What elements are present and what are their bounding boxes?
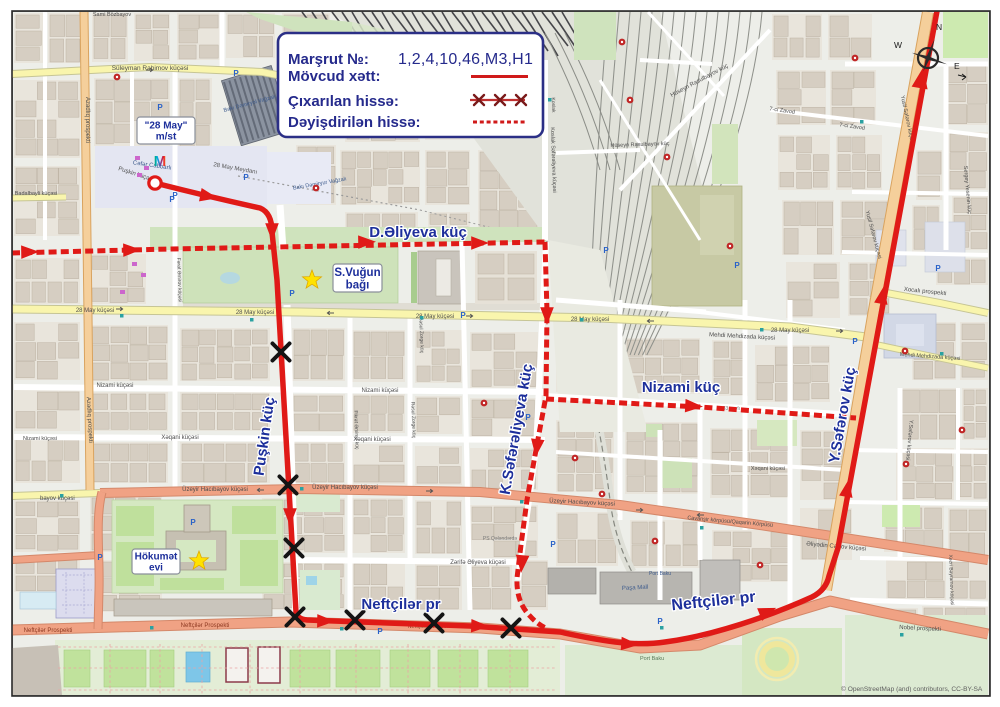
- svg-text:Üzeyir Hacıbayov küçəsi: Üzeyir Hacıbayov küçəsi: [312, 484, 378, 491]
- svg-text:Port Baku: Port Baku: [640, 656, 664, 662]
- svg-text:Xəqani küçəsi: Xəqani küçəsi: [161, 435, 198, 441]
- svg-text:P: P: [169, 195, 175, 204]
- svg-text:Port Baku: Port Baku: [649, 571, 671, 577]
- svg-text:Nizami küç: Nizami küç: [642, 379, 720, 396]
- svg-text:Badalbayli küçəsi: Badalbayli küçəsi: [15, 191, 58, 197]
- svg-text:PS Qələndərdə: PS Qələndərdə: [483, 536, 517, 542]
- svg-text:P: P: [734, 261, 740, 270]
- svg-text:Marşrut №:: Marşrut №:: [288, 51, 369, 68]
- svg-text:28 May küçəsi: 28 May küçəsi: [771, 328, 809, 334]
- svg-text:P: P: [97, 553, 103, 562]
- svg-text:P: P: [243, 173, 249, 182]
- svg-text:1,2,4,10,46,M3,H1: 1,2,4,10,46,M3,H1: [398, 51, 533, 68]
- svg-text:Dəyişdirilən hissə:: Dəyişdirilən hissə:: [288, 114, 421, 131]
- svg-text:© OpenStreetMap (and) contribu: © OpenStreetMap (and) contributors, CC-B…: [841, 685, 983, 693]
- svg-text:"28 May": "28 May": [145, 121, 188, 132]
- svg-text:P: P: [935, 264, 941, 273]
- svg-text:M: M: [154, 153, 167, 170]
- svg-text:m/st: m/st: [156, 132, 177, 143]
- svg-text:P: P: [657, 617, 663, 626]
- svg-text:28 May küçəsi: 28 May küçəsi: [236, 310, 274, 316]
- svg-text:28 May küçəsi: 28 May küçəsi: [571, 317, 609, 323]
- svg-text:P: P: [460, 311, 466, 320]
- svg-text:Hökumət: Hökumət: [135, 552, 178, 563]
- svg-text:Üzeyir Hacıbayov küçəsi: Üzeyir Hacıbayov küçəsi: [182, 486, 248, 493]
- svg-text:S.Vuğun: S.Vuğun: [334, 267, 380, 279]
- svg-text:Sami Bözbayov: Sami Bözbayov: [93, 12, 131, 18]
- svg-text:N: N: [936, 22, 942, 32]
- svg-text:P: P: [289, 289, 295, 298]
- svg-text:28 May küçəsi: 28 May küçəsi: [76, 308, 114, 314]
- svg-text:bağı: bağı: [346, 279, 370, 291]
- svg-text:Zərifə Əliyeva küçəsi: Zərifə Əliyeva küçəsi: [450, 560, 506, 566]
- svg-text:bayov küçəsi: bayov küçəsi: [40, 496, 75, 502]
- svg-text:P: P: [233, 69, 239, 78]
- svg-text:P: P: [603, 246, 609, 255]
- svg-text:P: P: [157, 103, 163, 112]
- svg-text:Mövcud xətt:: Mövcud xətt:: [288, 68, 381, 85]
- svg-text:E: E: [954, 61, 960, 71]
- svg-text:Nizami küçəsi: Nizami küçəsi: [23, 436, 57, 442]
- svg-text:D.Əliyeva küç: D.Əliyeva küç: [369, 224, 467, 241]
- svg-text:Çıxarılan hissə:: Çıxarılan hissə:: [288, 93, 399, 110]
- svg-text:P: P: [190, 518, 196, 527]
- svg-text:Neftçilər pr: Neftçilər pr: [361, 596, 440, 613]
- svg-text:Nizami küçəsi: Nizami küçəsi: [96, 383, 133, 389]
- svg-text:P: P: [852, 337, 858, 346]
- svg-text:P: P: [550, 540, 556, 549]
- svg-text:Neftçilər Prospekti: Neftçilər Prospekti: [181, 623, 230, 629]
- svg-text:Xəqani küçəsi: Xəqani küçəsi: [751, 466, 785, 472]
- svg-text:Neftçilər Prospekti: Neftçilər Prospekti: [24, 628, 73, 634]
- svg-text:evi: evi: [149, 563, 163, 574]
- svg-text:P: P: [377, 627, 383, 636]
- svg-text:Azadlıq prospekti: Azadlıq prospekti: [84, 97, 90, 143]
- svg-text:Nizami küçəsi: Nizami küçəsi: [361, 388, 398, 394]
- svg-text:W: W: [894, 40, 902, 50]
